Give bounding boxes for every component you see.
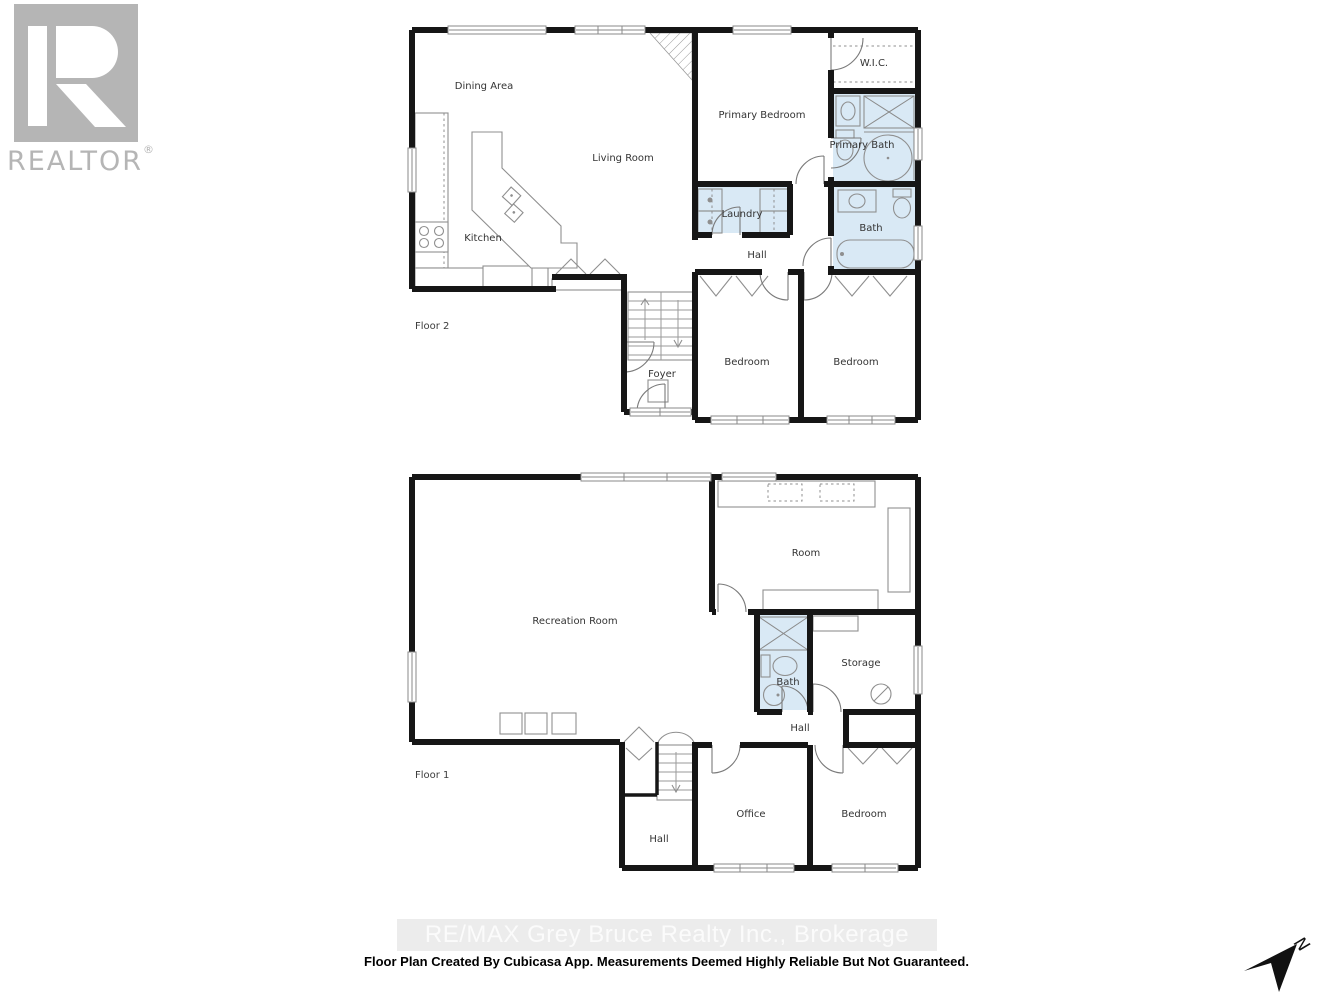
- window: [914, 226, 922, 260]
- window: [832, 864, 898, 872]
- floorplan-svg: REALTOR ®: [0, 0, 1333, 1000]
- recreation-furniture: [500, 713, 576, 734]
- watermark: RE/MAX Grey Bruce Realty Inc., Brokerage: [397, 919, 937, 951]
- room-label-dining: Dining Area: [455, 81, 513, 92]
- room-label-foyer: Foyer: [648, 369, 677, 380]
- room-label-storage: Storage: [841, 658, 880, 669]
- floor-plan-page: REALTOR ®: [0, 0, 1333, 1000]
- door-arc: [804, 272, 832, 300]
- room-label-wic: W.I.C.: [860, 58, 888, 69]
- floor1-label: Floor 1: [415, 770, 449, 781]
- room-label-bath-floor1: Bath: [776, 677, 799, 688]
- window: [714, 864, 794, 872]
- window: [733, 26, 791, 34]
- counter: [718, 481, 875, 507]
- room-label-hall-upper: Hall: [790, 723, 809, 734]
- realtor-logo-mark: [14, 4, 138, 142]
- room-label-primary-bedroom: Primary Bedroom: [718, 110, 805, 121]
- floor1-closet-walls: [622, 742, 657, 795]
- counter: [888, 508, 910, 592]
- window: [575, 26, 645, 34]
- floor2-label: Floor 2: [415, 321, 449, 332]
- window: [914, 128, 922, 160]
- door-arc: [718, 584, 746, 612]
- electrical-symbol: [871, 684, 891, 704]
- room-label-hall-lower: Hall: [649, 834, 668, 845]
- door-arc: [803, 238, 831, 266]
- footer-disclaimer: Floor Plan Created By Cubicasa App. Meas…: [0, 954, 1333, 969]
- room-label-kitchen: Kitchen: [464, 233, 502, 244]
- floor1-plan: Recreation Room Room Bath Storage Hall H…: [408, 473, 922, 872]
- window: [914, 646, 922, 694]
- door-arc: [815, 745, 843, 773]
- room-label-room: Room: [792, 548, 820, 559]
- realtor-logo-text: REALTOR: [7, 146, 143, 177]
- door-arc: [813, 684, 841, 712]
- room-label-office: Office: [736, 809, 765, 820]
- stove: [415, 222, 448, 252]
- room-label-hall-floor2: Hall: [747, 250, 766, 261]
- realtor-logo: REALTOR ®: [7, 4, 154, 177]
- room-label-bedroom-right: Bedroom: [833, 357, 878, 368]
- door-arc: [760, 272, 788, 300]
- stairs-floor1: [657, 732, 695, 800]
- room-label-bath-floor2: Bath: [859, 223, 882, 234]
- room-fixtures: [718, 481, 910, 612]
- room-label-primary-bath: Primary Bath: [829, 140, 894, 151]
- dishwasher: [483, 266, 532, 289]
- door-arc: [712, 745, 740, 773]
- wet-area-bath-floor1: [759, 615, 808, 710]
- stairs-floor2: [628, 292, 695, 360]
- kitchen-island: [472, 132, 577, 268]
- floor2-plan: Dining Area Living Room Kitchen Primary …: [408, 26, 922, 424]
- window: [408, 652, 416, 702]
- window: [408, 148, 416, 192]
- entry-recess: [552, 279, 625, 290]
- door-arc: [831, 38, 863, 70]
- window: [581, 473, 711, 481]
- door-chevron: [590, 259, 620, 274]
- shelf: [813, 616, 858, 631]
- door-arc: [796, 156, 824, 184]
- kitchen-fixtures: [415, 113, 625, 290]
- room-label-bedroom-floor1: Bedroom: [841, 809, 886, 820]
- room-label-living: Living Room: [592, 153, 653, 164]
- window: [448, 26, 546, 34]
- window: [711, 416, 789, 424]
- room-label-bedroom-left: Bedroom: [724, 357, 769, 368]
- hatched-corner: [650, 33, 692, 80]
- window: [630, 408, 691, 416]
- realtor-registered-mark: ®: [143, 143, 154, 156]
- table: [763, 590, 878, 612]
- room-label-recreation: Recreation Room: [532, 616, 617, 627]
- window: [722, 473, 776, 481]
- window: [827, 416, 895, 424]
- door-chevron: [624, 727, 654, 742]
- room-label-laundry: Laundry: [722, 209, 763, 220]
